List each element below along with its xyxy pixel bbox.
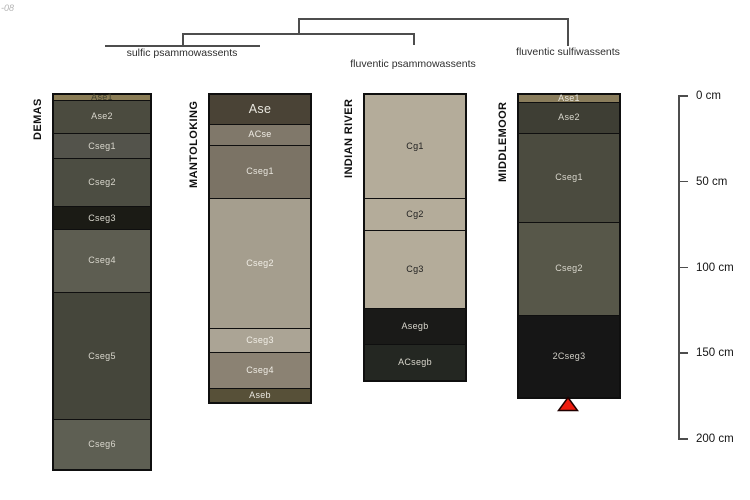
soil-column-demas: Ase1Ase2Cseg1Cseg2Cseg3Cseg4Cseg5Cseg6 bbox=[52, 93, 152, 471]
horizon-mantoloking-aseb: Aseb bbox=[210, 388, 310, 402]
horizon-label: Aseb bbox=[249, 391, 271, 400]
horizon-label: Cseg6 bbox=[88, 440, 116, 449]
tree-label-sulfic-psammowassents: sulfic psammowassents bbox=[127, 47, 238, 59]
horizon-demas-cseg3: Cseg3 bbox=[54, 206, 150, 228]
horizon-label: Cseg4 bbox=[88, 256, 116, 265]
soil-column-middlemoor: Ase1Ase2Cseg1Cseg22Cseg3 bbox=[517, 93, 621, 399]
horizon-label: Cg3 bbox=[406, 265, 423, 274]
horizon-mantoloking-ase: Ase bbox=[210, 95, 310, 124]
tree-label-fluventic-sulfiwassents: fluventic sulfiwassents bbox=[516, 46, 620, 58]
column-title-demas: DEMAS bbox=[32, 98, 44, 140]
horizon-label: ACse bbox=[248, 130, 271, 139]
horizon-label: ACsegb bbox=[398, 358, 432, 367]
horizon-middlemoor-ase2: Ase2 bbox=[519, 102, 619, 133]
horizon-label: Cseg3 bbox=[246, 336, 274, 345]
tree-sulfic-vertical-line bbox=[182, 33, 184, 45]
depth-scale-tick-100 bbox=[678, 267, 688, 269]
horizon-label: Cg2 bbox=[406, 210, 423, 219]
horizon-indian-river-asegb: Asegb bbox=[365, 308, 465, 344]
red-triangle-marker bbox=[557, 396, 579, 412]
horizon-label: Cseg1 bbox=[555, 173, 583, 182]
horizon-demas-cseg2: Cseg2 bbox=[54, 158, 150, 206]
horizon-mantoloking-cseg1: Cseg1 bbox=[210, 145, 310, 198]
horizon-label: Ase2 bbox=[91, 112, 113, 121]
horizon-label: Cseg2 bbox=[555, 264, 583, 273]
depth-scale-tick-150 bbox=[678, 352, 688, 354]
horizon-indian-river-acsegb: ACsegb bbox=[365, 344, 465, 380]
column-title-indian-river: INDIAN RIVER bbox=[343, 99, 355, 178]
depth-scale-label-150: 150 cm bbox=[696, 347, 734, 359]
horizon-demas-ase2: Ase2 bbox=[54, 100, 150, 133]
horizon-label: Cseg2 bbox=[246, 259, 274, 268]
horizon-demas-cseg5: Cseg5 bbox=[54, 292, 150, 419]
horizon-middlemoor-ase1: Ase1 bbox=[519, 95, 619, 102]
tree-left-vertical-line bbox=[298, 18, 300, 34]
soil-column-indian-river: Cg1Cg2Cg3AsegbACsegb bbox=[363, 93, 467, 382]
horizon-middlemoor-cseg2: Cseg2 bbox=[519, 222, 619, 315]
horizon-label: Asegb bbox=[401, 322, 428, 331]
depth-scale-label-200: 200 cm bbox=[696, 433, 734, 445]
horizon-indian-river-cg1: Cg1 bbox=[365, 95, 465, 198]
tree-label-fluventic-psammowassents: fluventic psammowassents bbox=[350, 58, 475, 70]
horizon-label: Cseg1 bbox=[88, 142, 116, 151]
tree-right-vertical-line bbox=[567, 18, 569, 46]
tree-root-horizontal-line bbox=[298, 18, 568, 20]
horizon-indian-river-cg2: Cg2 bbox=[365, 198, 465, 231]
horizon-demas-cseg1: Cseg1 bbox=[54, 133, 150, 159]
soil-profile-figure: -08 sulfic psammowassents fluventic psam… bbox=[0, 0, 750, 500]
depth-scale-label-100: 100 cm bbox=[696, 262, 734, 274]
depth-scale-tick-0 bbox=[678, 95, 688, 97]
horizon-middlemoor-cseg1: Cseg1 bbox=[519, 133, 619, 222]
horizon-mantoloking-cseg2: Cseg2 bbox=[210, 198, 310, 328]
horizon-indian-river-cg3: Cg3 bbox=[365, 230, 465, 307]
column-title-mantoloking: MANTOLOKING bbox=[188, 101, 200, 188]
horizon-label: Cseg4 bbox=[246, 366, 274, 375]
depth-scale-tick-50 bbox=[678, 181, 688, 183]
horizon-mantoloking-acse: ACse bbox=[210, 124, 310, 145]
tree-fluventic-psamm-vertical-line bbox=[413, 33, 415, 45]
horizon-middlemoor-2cseg3: 2Cseg3 bbox=[519, 315, 619, 397]
horizon-label: Ase bbox=[249, 103, 271, 116]
depth-scale-label-0: 0 cm bbox=[696, 90, 721, 102]
horizon-demas-cseg4: Cseg4 bbox=[54, 229, 150, 292]
horizon-label: Ase2 bbox=[558, 113, 580, 122]
horizon-label: Cseg2 bbox=[88, 178, 116, 187]
horizon-label: Cseg1 bbox=[246, 167, 274, 176]
horizon-label: Cseg3 bbox=[88, 214, 116, 223]
horizon-demas-cseg6: Cseg6 bbox=[54, 419, 150, 469]
column-title-middlemoor: MIDDLEMOOR bbox=[497, 102, 509, 182]
soil-column-mantoloking: AseACseCseg1Cseg2Cseg3Cseg4Aseb bbox=[208, 93, 312, 404]
horizon-label: 2Cseg3 bbox=[553, 352, 586, 361]
depth-scale-label-50: 50 cm bbox=[696, 176, 727, 188]
horizon-label: Cseg5 bbox=[88, 352, 116, 361]
horizon-mantoloking-cseg3: Cseg3 bbox=[210, 328, 310, 352]
depth-scale-tick-200 bbox=[678, 438, 688, 440]
watermark-text: -08 bbox=[1, 3, 14, 13]
horizon-label: Cg1 bbox=[406, 142, 423, 151]
horizon-mantoloking-cseg4: Cseg4 bbox=[210, 352, 310, 388]
tree-left-branch-horizontal-line bbox=[182, 33, 414, 35]
